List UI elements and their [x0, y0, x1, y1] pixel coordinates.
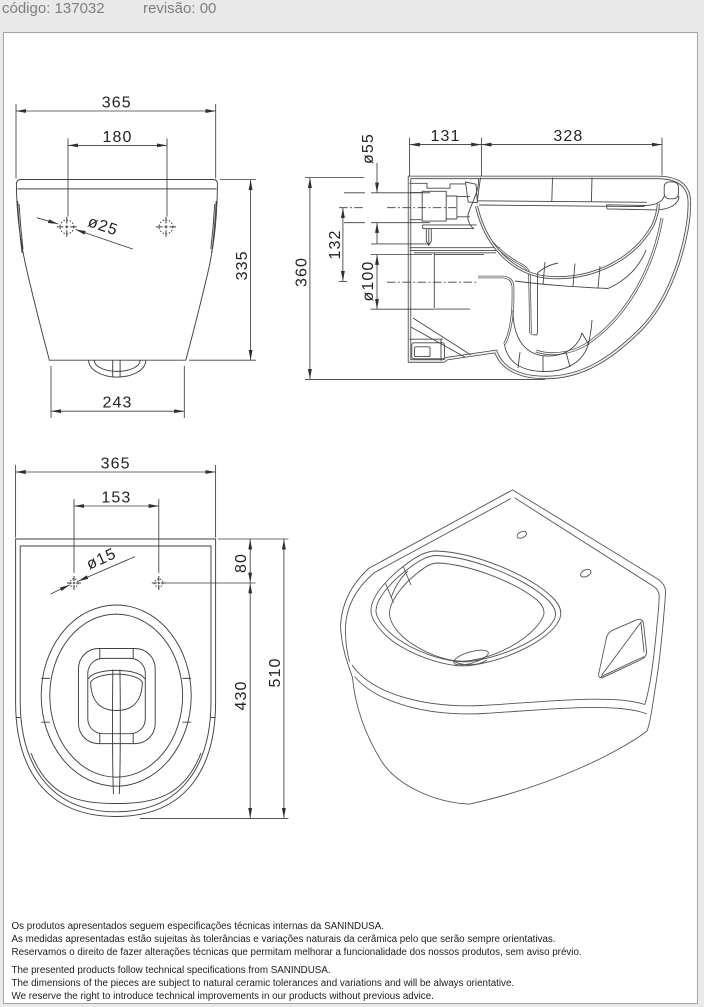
svg-text:243: 243: [103, 395, 133, 412]
svg-text:328: 328: [553, 128, 583, 145]
svg-text:ø25: ø25: [86, 214, 121, 240]
svg-text:335: 335: [234, 250, 251, 280]
svg-text:510: 510: [267, 658, 284, 688]
svg-text:ø55: ø55: [360, 133, 377, 164]
svg-text:132: 132: [327, 230, 344, 260]
svg-text:365: 365: [101, 456, 131, 473]
svg-text:131: 131: [431, 128, 461, 145]
svg-text:365: 365: [102, 95, 132, 112]
svg-text:80: 80: [233, 553, 250, 573]
svg-text:ø100: ø100: [360, 261, 377, 302]
svg-text:153: 153: [101, 490, 131, 507]
svg-text:360: 360: [294, 257, 311, 287]
svg-text:ø15: ø15: [84, 545, 119, 573]
svg-text:180: 180: [103, 129, 133, 146]
svg-text:430: 430: [233, 681, 250, 711]
